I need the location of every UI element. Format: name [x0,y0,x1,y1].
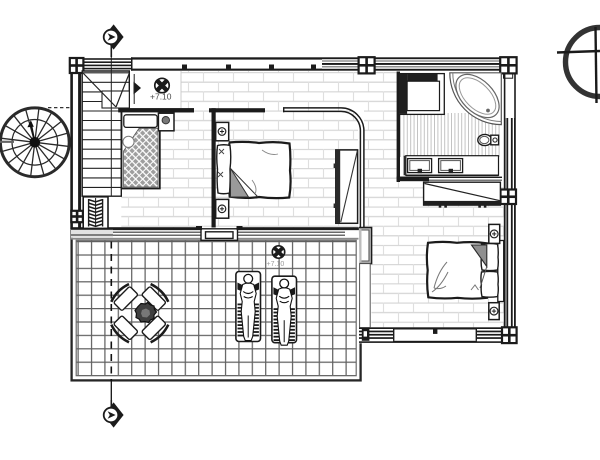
svg-text:+7.10: +7.10 [267,261,285,268]
svg-text:+7.10: +7.10 [150,91,172,101]
